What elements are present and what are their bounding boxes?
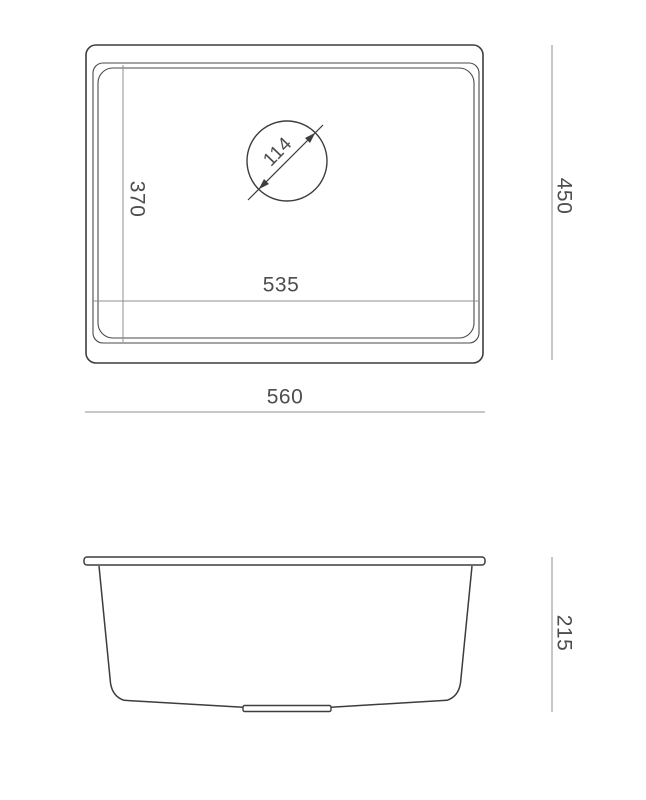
dim-label-outer-depth: 450 [553,178,576,215]
side-view-left-wall [99,566,243,707]
side-view-right-wall [331,566,472,707]
top-view-bowl-edge-inner [98,68,474,338]
dim-label-outer-width: 560 [267,386,304,409]
dim-label-height: 215 [553,615,576,652]
sink-dimension-drawing: 114 370 535 560 450 215 [0,0,646,800]
side-view-drain-boss [243,706,331,712]
dim-label-bowl-width: 535 [263,274,300,297]
side-view-rim-flange [84,557,485,565]
technical-drawing-page: 114 370 535 560 450 215 [0,0,646,800]
side-view: 215 [84,557,576,712]
dim-label-bowl-depth: 370 [126,181,149,218]
dim-label-drain-diameter: 114 [259,133,296,170]
top-view: 114 370 535 560 450 [85,45,576,412]
